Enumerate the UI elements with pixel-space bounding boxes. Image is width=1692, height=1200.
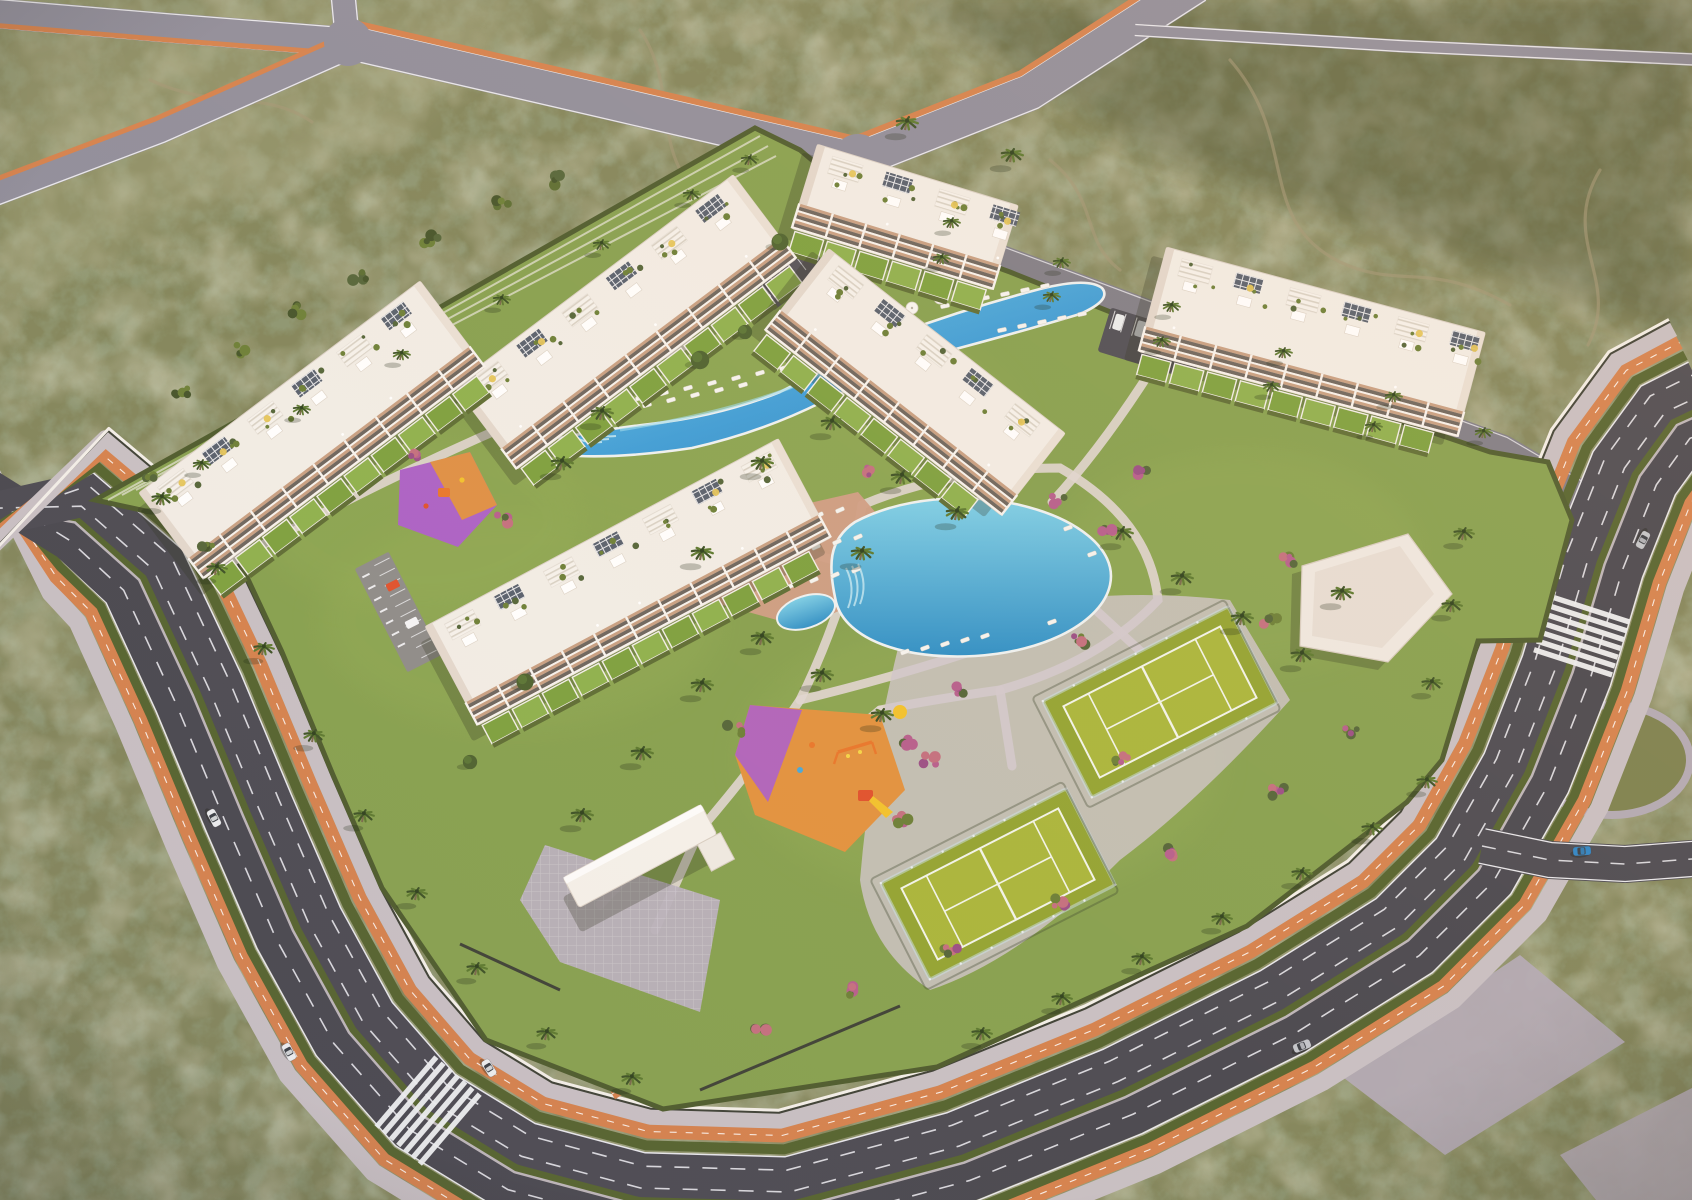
light-overlay [0, 0, 1692, 1200]
aerial-render-canvas [0, 0, 1692, 1200]
aerial-render-3d [0, 0, 1692, 1200]
